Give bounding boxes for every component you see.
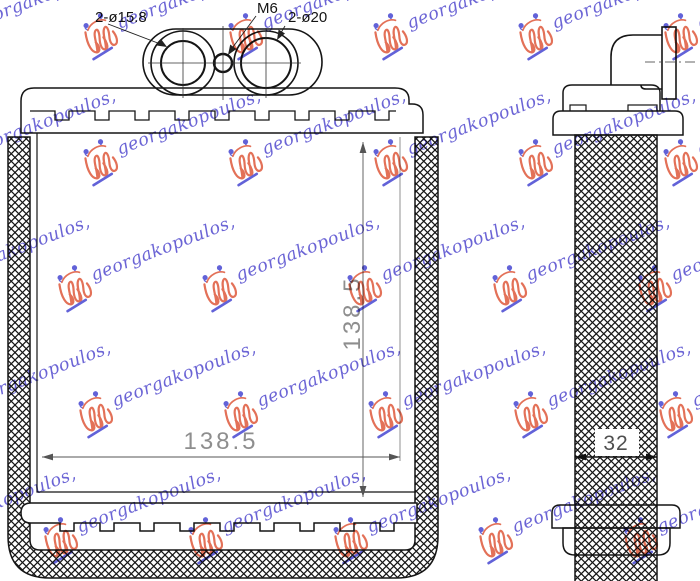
bottom-tank xyxy=(21,503,417,531)
core-height-dimension: 138.5 xyxy=(339,275,366,350)
thread-size-label: M6 xyxy=(257,0,278,17)
heater-core-drawing: 138.5 138.5 2-ø15.8 M6 2-ø20 xyxy=(0,0,700,581)
side-top-flange xyxy=(553,111,683,135)
side-core-strip xyxy=(575,135,657,581)
port-small-dimension-label: 2-ø15.8 xyxy=(95,9,147,26)
technical-drawing-page: 138.5 138.5 2-ø15.8 M6 2-ø20 xyxy=(0,0,700,581)
port-large-dimension-label: 2-ø20 xyxy=(288,9,327,26)
front-view: 138.5 138.5 2-ø15.8 M6 2-ø20 xyxy=(8,0,438,578)
side-elbow-pipe xyxy=(611,27,699,99)
width-dimension: 138.5 xyxy=(42,428,400,460)
side-view: 32 xyxy=(552,27,699,581)
height-dimension: 138.5 xyxy=(339,142,366,497)
core-depth-dimension: 32 xyxy=(603,432,628,455)
core-width-dimension: 138.5 xyxy=(183,428,258,455)
